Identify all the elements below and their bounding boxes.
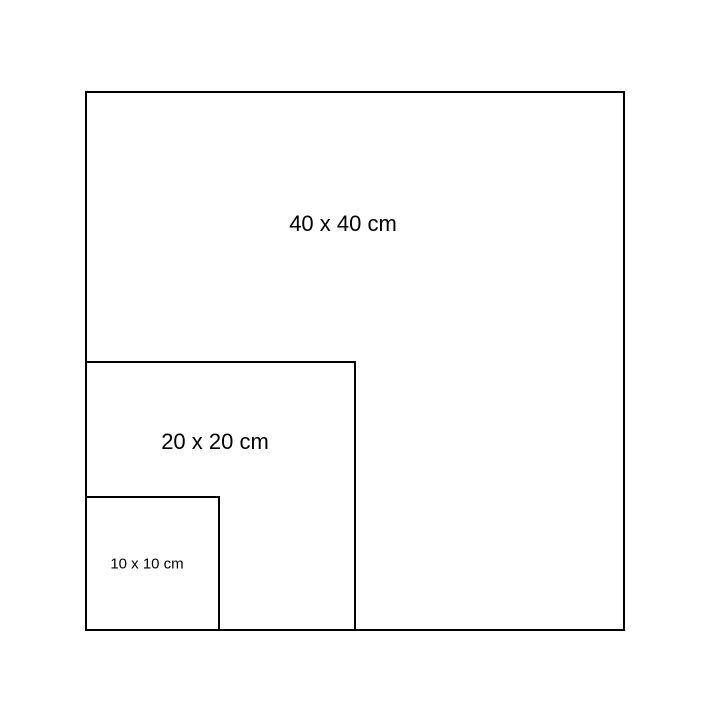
square-20x20-label: 20 x 20 cm: [161, 431, 269, 453]
square-40x40-label: 40 x 40 cm: [289, 213, 397, 235]
nested-squares-diagram: 40 x 40 cm 20 x 20 cm 10 x 10 cm: [0, 0, 720, 720]
square-10x10-label: 10 x 10 cm: [110, 557, 183, 572]
